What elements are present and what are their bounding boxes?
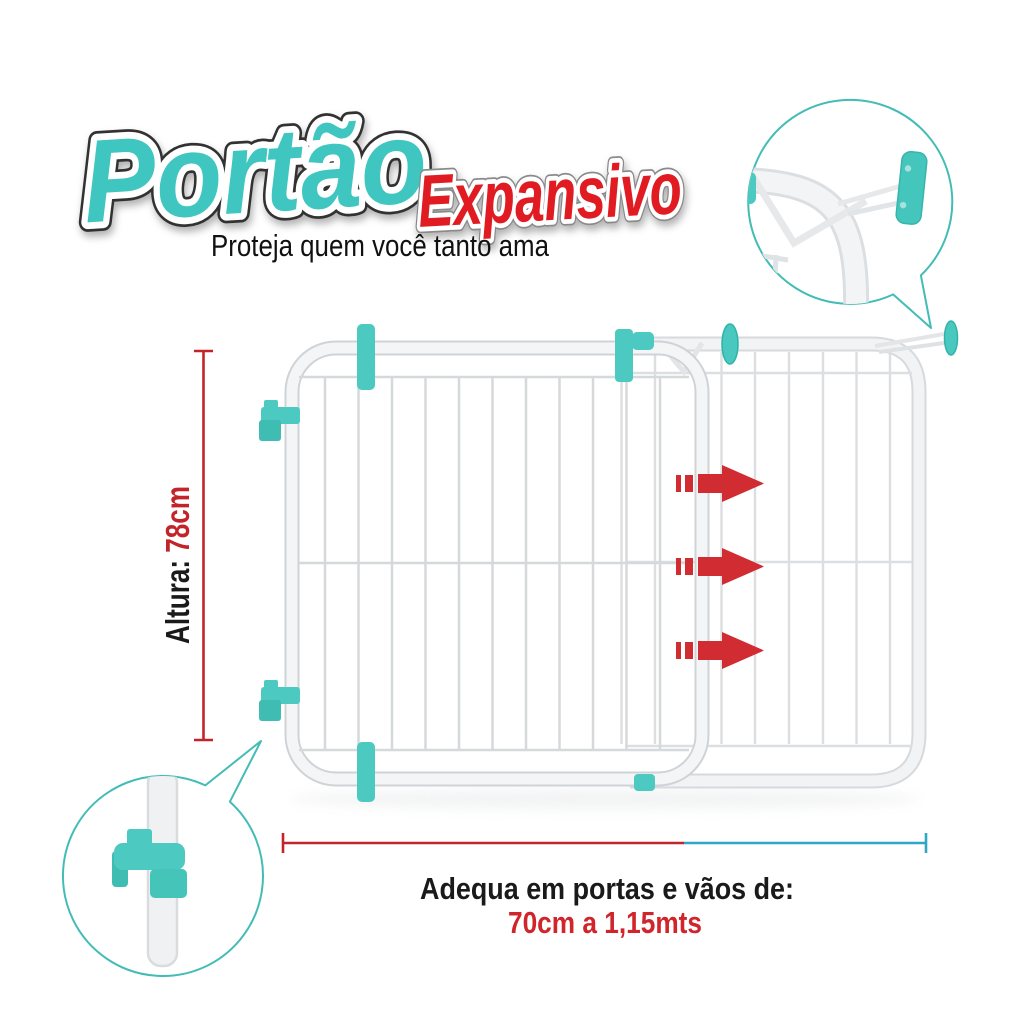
- svg-text:Altura: 78cm: Altura: 78cm: [159, 486, 196, 644]
- svg-text:Adequa em portas e vãos de:: Adequa em portas e vãos de:: [420, 871, 794, 906]
- svg-text:Proteja quem você tanto ama: Proteja quem você tanto ama: [211, 228, 550, 263]
- svg-text:70cm a 1,15mts: 70cm a 1,15mts: [508, 905, 702, 940]
- svg-text:Portão: Portão: [79, 96, 430, 249]
